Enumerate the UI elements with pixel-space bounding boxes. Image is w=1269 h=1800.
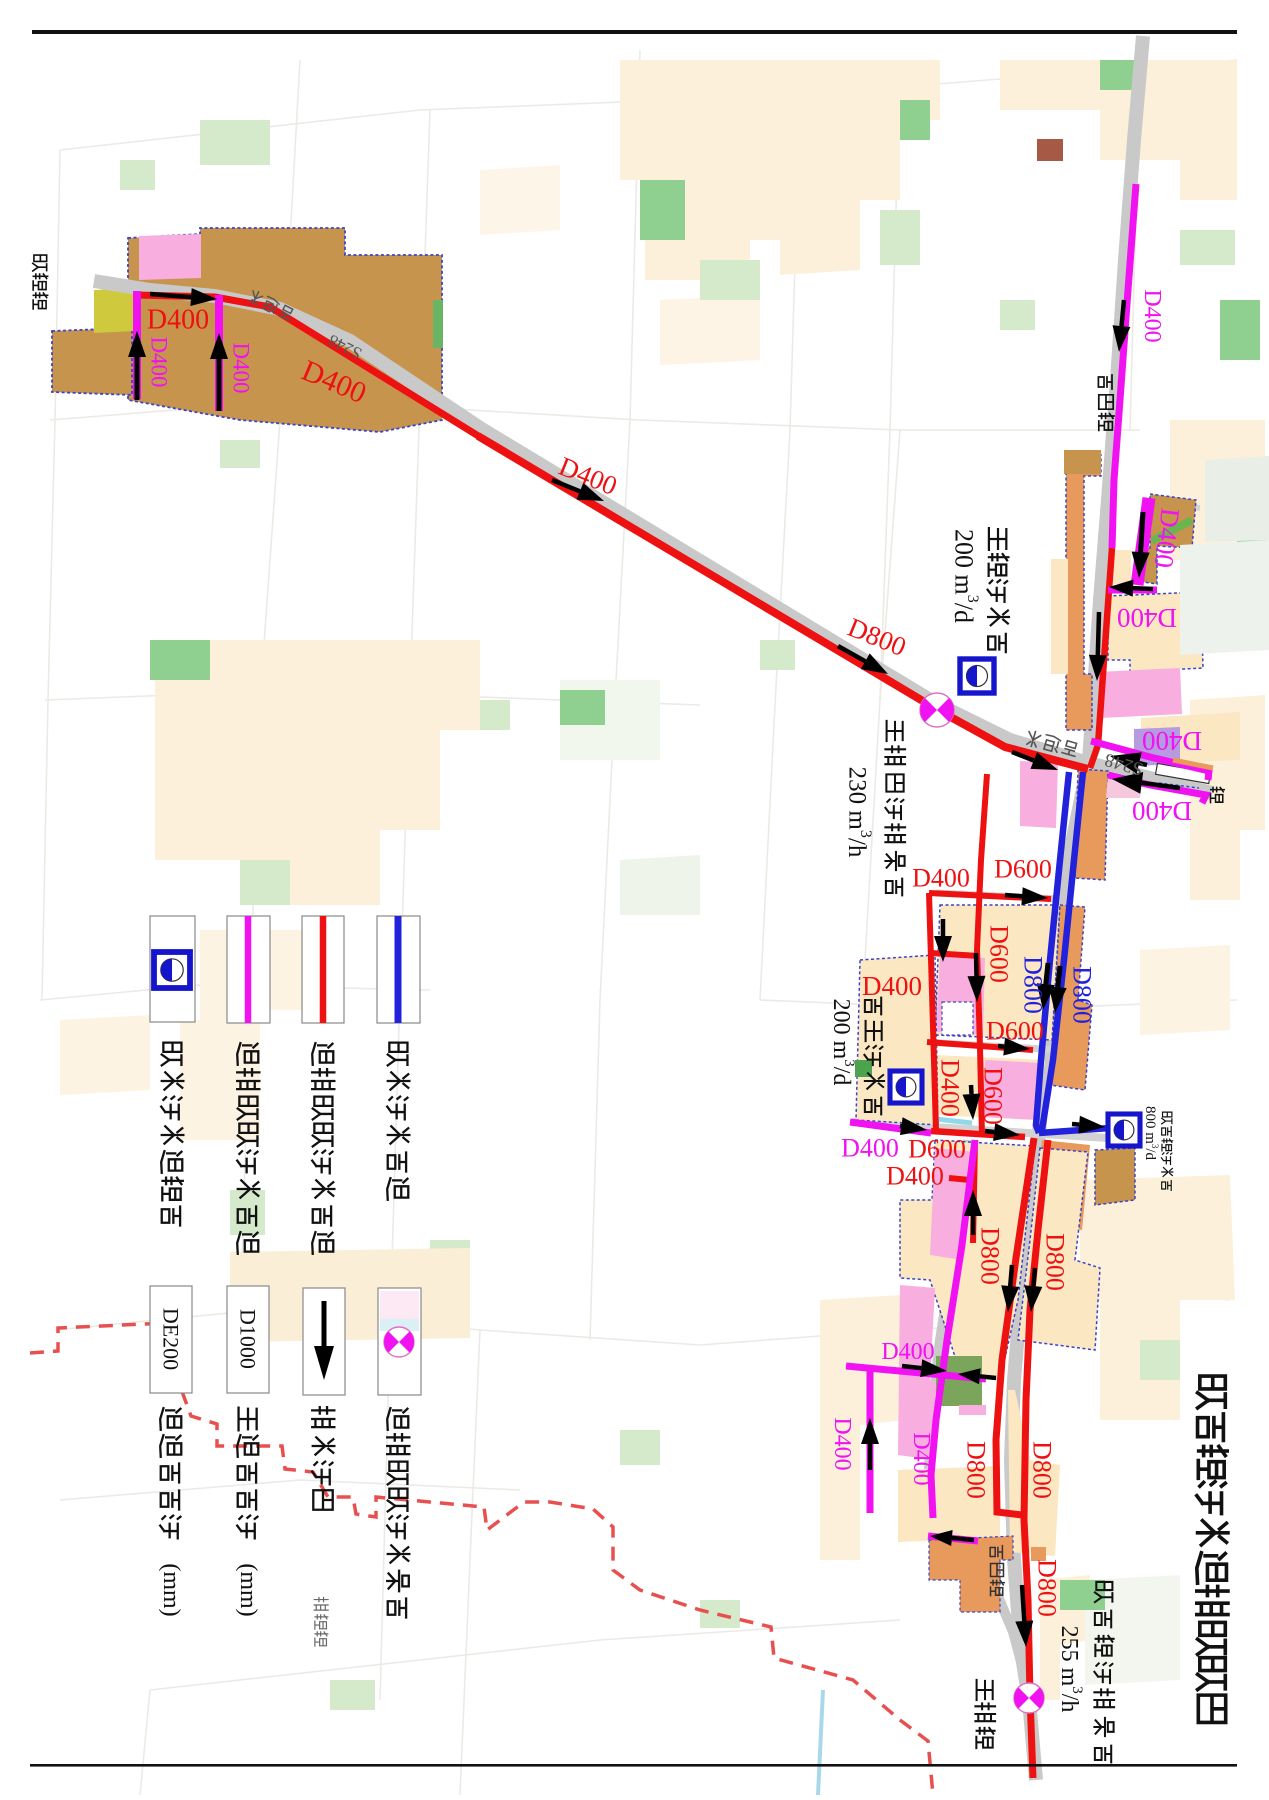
svg-text:D800: D800 (1019, 956, 1048, 1014)
svg-text:D800: D800 (1033, 1559, 1062, 1617)
svg-text:D800: D800 (1068, 966, 1097, 1024)
svg-text:D400: D400 (229, 342, 254, 393)
svg-text:(mm): (mm) (158, 1563, 184, 1616)
svg-text:D600: D600 (979, 1067, 1008, 1125)
svg-text:D400: D400 (829, 1417, 855, 1470)
svg-text:D400: D400 (908, 1432, 934, 1485)
svg-text:200 m3/d: 200 m3/d (950, 529, 982, 623)
svg-text:D600: D600 (985, 925, 1014, 983)
svg-text:D600: D600 (908, 1135, 966, 1164)
svg-text:200 m3/d: 200 m3/d (828, 999, 857, 1086)
svg-text:D800: D800 (1028, 1441, 1057, 1499)
svg-text:D400: D400 (841, 1134, 899, 1163)
svg-text:DE200: DE200 (159, 1308, 184, 1370)
svg-text:D400: D400 (886, 1162, 944, 1191)
svg-text:D1000: D1000 (236, 1309, 261, 1369)
svg-text:230 m3/h: 230 m3/h (844, 767, 875, 858)
svg-text:800 m3/d: 800 m3/d (1142, 1106, 1160, 1161)
svg-text:D800: D800 (962, 1441, 991, 1499)
svg-text:D400: D400 (881, 1339, 934, 1365)
svg-text:D400: D400 (936, 1059, 965, 1117)
svg-text:D400: D400 (1139, 289, 1165, 342)
svg-text:D400: D400 (1142, 726, 1202, 756)
svg-text:D400: D400 (1117, 603, 1177, 633)
svg-text:D400: D400 (147, 336, 172, 387)
svg-text:D400: D400 (1132, 796, 1192, 826)
svg-text:D600: D600 (994, 855, 1052, 884)
svg-text:255 m3/h: 255 m3/h (1056, 1626, 1085, 1713)
svg-text:D800: D800 (1041, 1233, 1070, 1291)
svg-text:D400: D400 (147, 305, 209, 336)
svg-text:D800: D800 (976, 1227, 1005, 1285)
svg-text:(mm): (mm) (235, 1563, 261, 1616)
svg-text:D400: D400 (912, 864, 970, 893)
svg-text:D600: D600 (986, 1017, 1044, 1046)
svg-text:D400: D400 (862, 971, 922, 1001)
